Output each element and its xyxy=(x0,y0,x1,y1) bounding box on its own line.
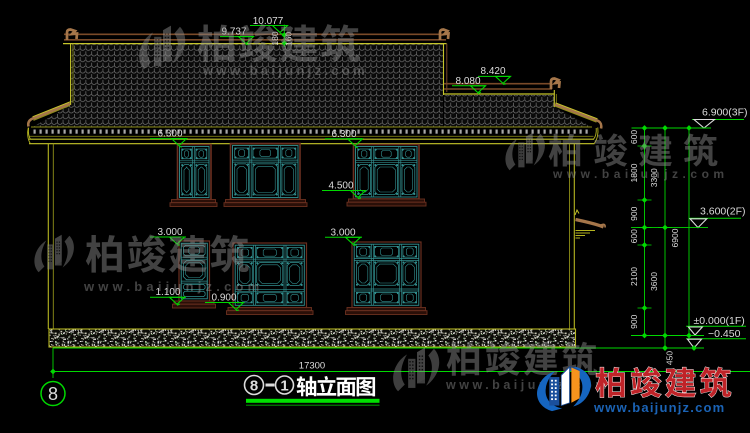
svg-text:www.baijunjz.com: www.baijunjz.com xyxy=(83,279,263,294)
svg-text:www.baijunjz.com: www.baijunjz.com xyxy=(202,63,368,78)
svg-text:6900: 6900 xyxy=(670,228,680,247)
svg-text:8: 8 xyxy=(250,378,258,395)
svg-text:www.baijunjz.com: www.baijunjz.com xyxy=(552,167,729,181)
svg-text:900: 900 xyxy=(629,314,639,328)
svg-text:±0.000(1F): ±0.000(1F) xyxy=(694,315,745,327)
svg-text:8.420: 8.420 xyxy=(480,66,505,77)
svg-text:6.900(3F): 6.900(3F) xyxy=(702,107,748,119)
svg-text:0.900: 0.900 xyxy=(211,293,236,304)
svg-text:8: 8 xyxy=(48,384,58,404)
svg-text:1: 1 xyxy=(280,378,288,395)
svg-text:−0.450: −0.450 xyxy=(708,328,741,340)
svg-text:600: 600 xyxy=(629,130,639,144)
svg-text:900: 900 xyxy=(629,206,639,220)
svg-text:450: 450 xyxy=(665,351,675,365)
svg-text:600: 600 xyxy=(629,229,639,243)
svg-text:3.000: 3.000 xyxy=(157,227,182,238)
svg-text:3600: 3600 xyxy=(649,272,659,291)
svg-text:2100: 2100 xyxy=(629,267,639,286)
svg-text:17300: 17300 xyxy=(299,361,325,372)
svg-text:3.600(2F): 3.600(2F) xyxy=(700,205,746,217)
svg-text:www.baijunjz.com: www.baijunjz.com xyxy=(593,400,725,415)
svg-text:4.500: 4.500 xyxy=(328,181,353,192)
svg-text:6.300: 6.300 xyxy=(157,129,182,140)
